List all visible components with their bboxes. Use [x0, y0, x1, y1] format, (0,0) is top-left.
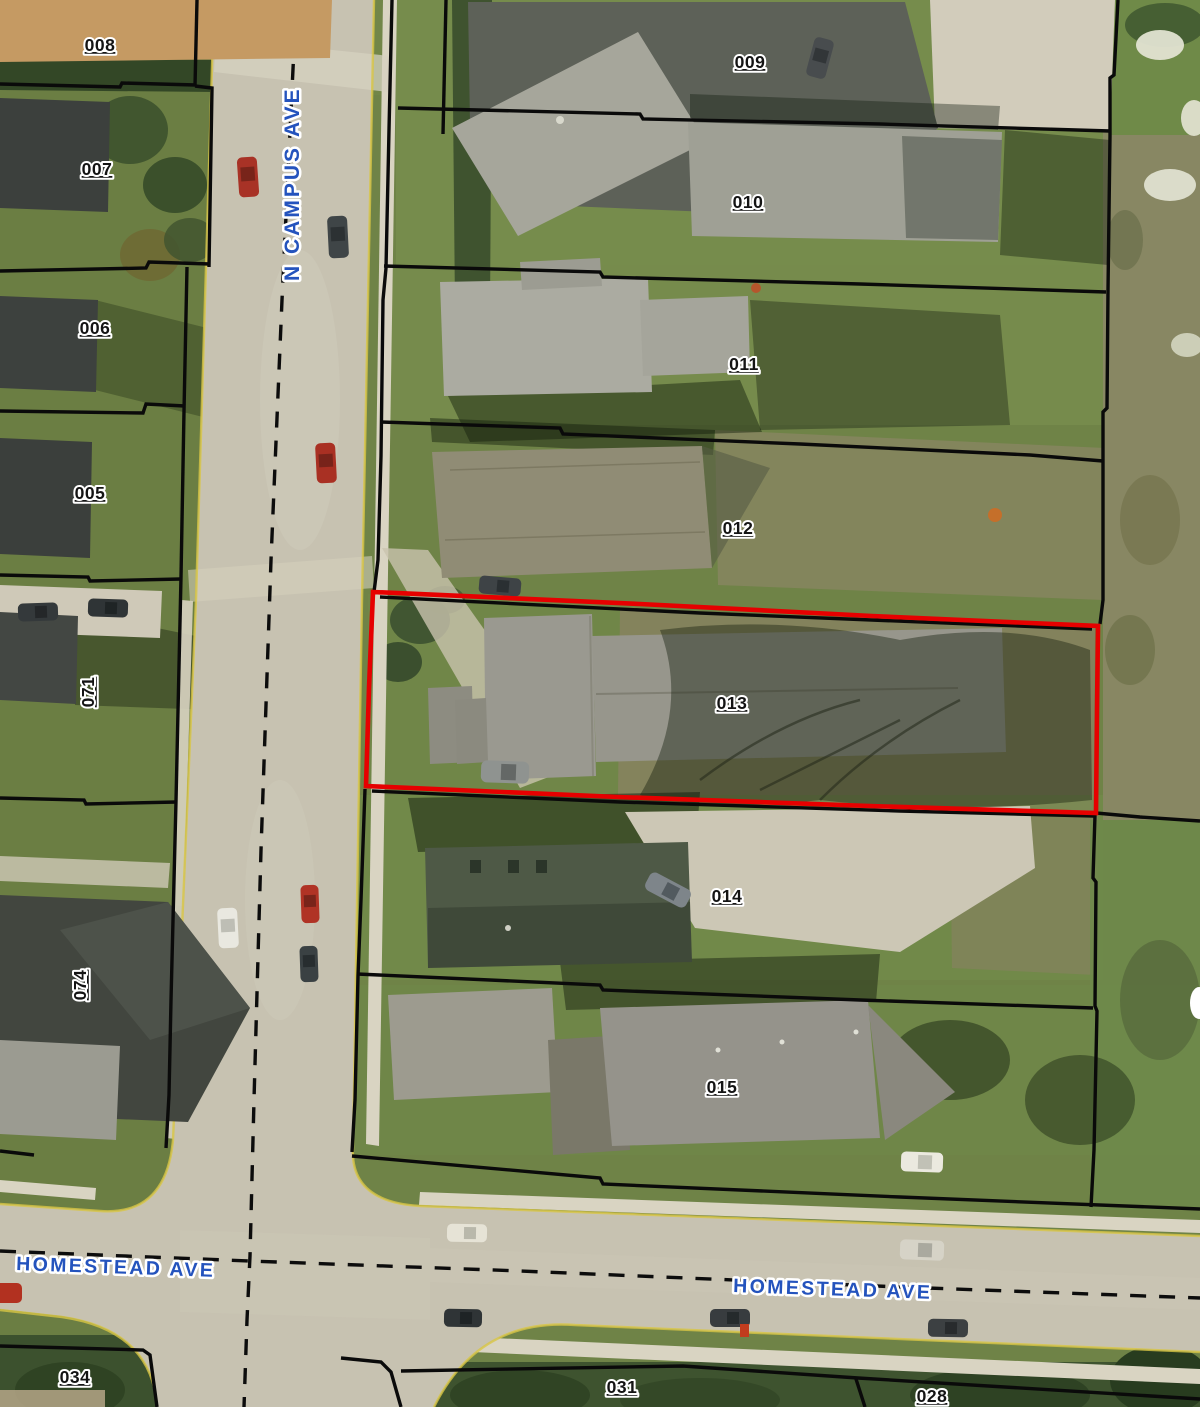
- parcel-label-031[interactable]: 031: [607, 1377, 638, 1397]
- house-071: [0, 612, 78, 704]
- parcel-label-011[interactable]: 011: [729, 354, 759, 374]
- aerial-parcel-map[interactable]: 008 007 006 005 071 074 034 009 010 011 …: [0, 0, 1200, 1407]
- car: [327, 216, 349, 259]
- parcel-label-008[interactable]: 008: [85, 35, 116, 55]
- car: [478, 575, 521, 597]
- parcel-label-071[interactable]: 071: [78, 677, 98, 708]
- house-015: [388, 988, 558, 1100]
- car: [300, 885, 319, 924]
- parcel-label-007[interactable]: 007: [82, 159, 113, 179]
- red-bin: [740, 1324, 749, 1337]
- car: [315, 443, 337, 484]
- parcel-label-014[interactable]: 014: [712, 886, 743, 906]
- parcel-label-034[interactable]: 034: [60, 1367, 91, 1387]
- car: [444, 1309, 482, 1328]
- parcel-label-074[interactable]: 074: [70, 970, 90, 1001]
- parcel-label-010[interactable]: 010: [733, 192, 764, 212]
- parcel-label-012[interactable]: 012: [723, 518, 754, 538]
- car: [900, 1239, 945, 1261]
- house-007: [0, 98, 110, 212]
- car: [481, 760, 530, 784]
- house-011: [440, 278, 652, 396]
- canopy-shadow: [640, 624, 1092, 807]
- parcel-label-028[interactable]: 028: [917, 1386, 948, 1406]
- street-label-n-campus-ave: N CAMPUS AVE: [281, 86, 304, 281]
- parcel-label-015[interactable]: 015: [707, 1077, 738, 1097]
- car: [18, 602, 59, 621]
- parcel-label-005[interactable]: 005: [75, 483, 106, 503]
- car: [0, 1283, 22, 1303]
- parcel-label-013[interactable]: 013: [717, 693, 748, 713]
- car: [928, 1319, 968, 1338]
- building-008: [0, 0, 332, 62]
- car: [237, 156, 260, 197]
- car: [447, 1224, 487, 1243]
- car: [299, 946, 318, 983]
- parcel-label-009[interactable]: 009: [735, 52, 766, 72]
- house-006: [0, 296, 98, 392]
- parcel-label-006[interactable]: 006: [80, 318, 111, 338]
- car: [901, 1151, 944, 1172]
- car: [88, 598, 129, 617]
- car: [217, 908, 239, 949]
